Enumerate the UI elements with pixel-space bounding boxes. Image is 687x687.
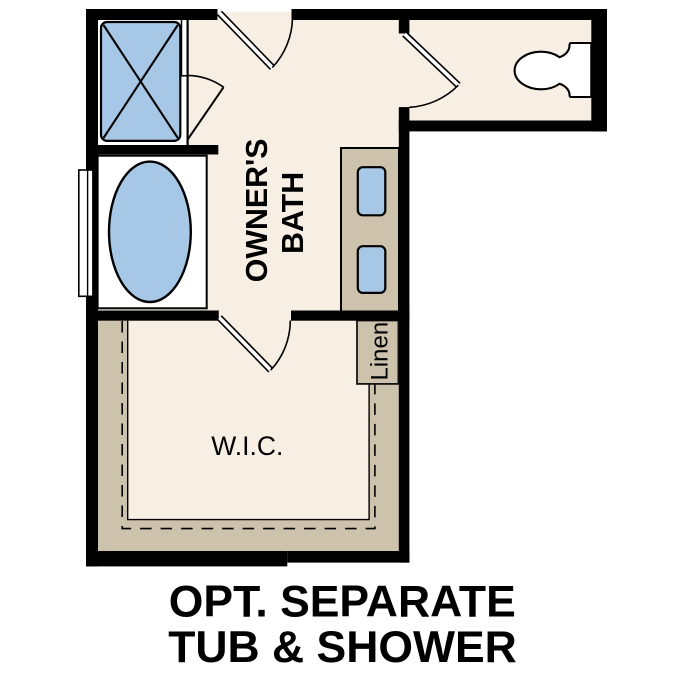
svg-text:OPT. SEPARATE: OPT. SEPARATE bbox=[169, 577, 516, 626]
svg-text:W.I.C.: W.I.C. bbox=[211, 431, 283, 461]
svg-text:OWNER'S: OWNER'S bbox=[241, 139, 274, 283]
svg-text:Linen: Linen bbox=[367, 322, 394, 381]
svg-text:TUB & SHOWER: TUB & SHOWER bbox=[168, 623, 517, 672]
svg-text:BATH: BATH bbox=[277, 172, 310, 254]
